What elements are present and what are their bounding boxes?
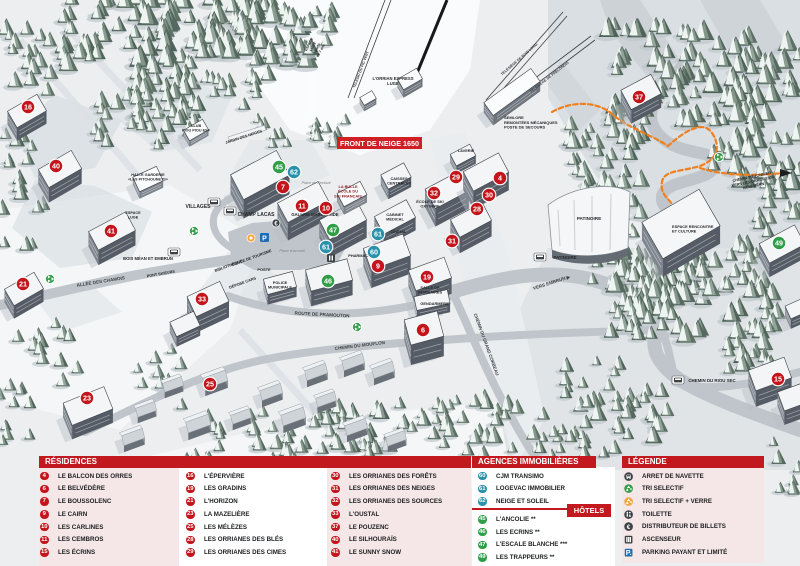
svg-text:PATINOIRE: PATINOIRE bbox=[553, 255, 576, 260]
svg-text:10: 10 bbox=[322, 204, 330, 213]
svg-text:31: 31 bbox=[448, 237, 456, 246]
svg-text:61: 61 bbox=[374, 230, 382, 239]
svg-text:LAVERIE: LAVERIE bbox=[458, 148, 475, 153]
svg-text:4: 4 bbox=[498, 174, 502, 183]
svg-text:7: 7 bbox=[281, 183, 285, 192]
svg-text:62: 62 bbox=[290, 168, 298, 177]
svg-text:30: 30 bbox=[485, 191, 493, 200]
svg-text:€: € bbox=[627, 524, 631, 531]
svg-text:CABINETMÉDICAL: CABINETMÉDICAL bbox=[386, 212, 404, 222]
svg-text:33: 33 bbox=[198, 295, 206, 304]
svg-text:61: 61 bbox=[322, 243, 330, 252]
svg-text:45: 45 bbox=[275, 163, 283, 172]
svg-text:GALERIE MARCHANDE: GALERIE MARCHANDE bbox=[291, 212, 338, 217]
svg-text:16: 16 bbox=[24, 103, 32, 112]
svg-text:21: 21 bbox=[19, 280, 27, 289]
svg-text:11: 11 bbox=[298, 202, 306, 211]
svg-text:60: 60 bbox=[370, 248, 378, 257]
svg-text:Place d’accueil: Place d’accueil bbox=[279, 249, 304, 253]
svg-text:41: 41 bbox=[107, 227, 115, 236]
svg-text:CINÉMA: CINÉMA bbox=[390, 229, 406, 234]
svg-text:GENDARMERIE: GENDARMERIE bbox=[420, 301, 450, 306]
svg-text:40: 40 bbox=[52, 162, 60, 171]
svg-text:25: 25 bbox=[206, 380, 214, 389]
svg-text:23: 23 bbox=[83, 394, 91, 403]
svg-text:6: 6 bbox=[421, 326, 425, 335]
svg-text:SALLE DESÉMINAIRES: SALLE DESÉMINAIRES bbox=[418, 285, 443, 295]
svg-text:CHAMP LACAS: CHAMP LACAS bbox=[238, 212, 276, 218]
svg-text:32: 32 bbox=[430, 189, 438, 198]
svg-text:HALTE GARDERIE«LES PITCHOUNETS: HALTE GARDERIE«LES PITCHOUNETS» bbox=[128, 173, 168, 182]
svg-text:15: 15 bbox=[774, 375, 782, 384]
svg-text:PATINOIRE: PATINOIRE bbox=[577, 216, 601, 221]
svg-text:CHEMIN DU RIOU SEC: CHEMIN DU RIOU SEC bbox=[688, 378, 736, 383]
svg-text:P.: P. bbox=[626, 549, 632, 557]
svg-text:P: P bbox=[262, 235, 267, 242]
svg-text:Place du Festival: Place du Festival bbox=[302, 181, 331, 185]
svg-text:47: 47 bbox=[329, 226, 337, 235]
svg-text:VILLAGES: VILLAGES bbox=[185, 204, 211, 210]
svg-text:46: 46 bbox=[324, 277, 332, 286]
svg-text:29: 29 bbox=[452, 173, 460, 182]
svg-text:37: 37 bbox=[635, 93, 643, 102]
svg-text:FRONT DE NEIGE 1650: FRONT DE NEIGE 1650 bbox=[340, 139, 419, 148]
svg-text:ÉCOLE DE SKIOXYGÈNE: ÉCOLE DE SKIOXYGÈNE bbox=[416, 199, 443, 209]
svg-text:BOIS MÉAN ET EMBRUN: BOIS MÉAN ET EMBRUN bbox=[123, 256, 173, 261]
svg-text:28: 28 bbox=[473, 205, 481, 214]
svg-text:9: 9 bbox=[376, 262, 380, 271]
svg-text:19: 19 bbox=[423, 273, 431, 282]
svg-text:POSTE: POSTE bbox=[257, 267, 271, 272]
svg-text:49: 49 bbox=[775, 239, 783, 248]
